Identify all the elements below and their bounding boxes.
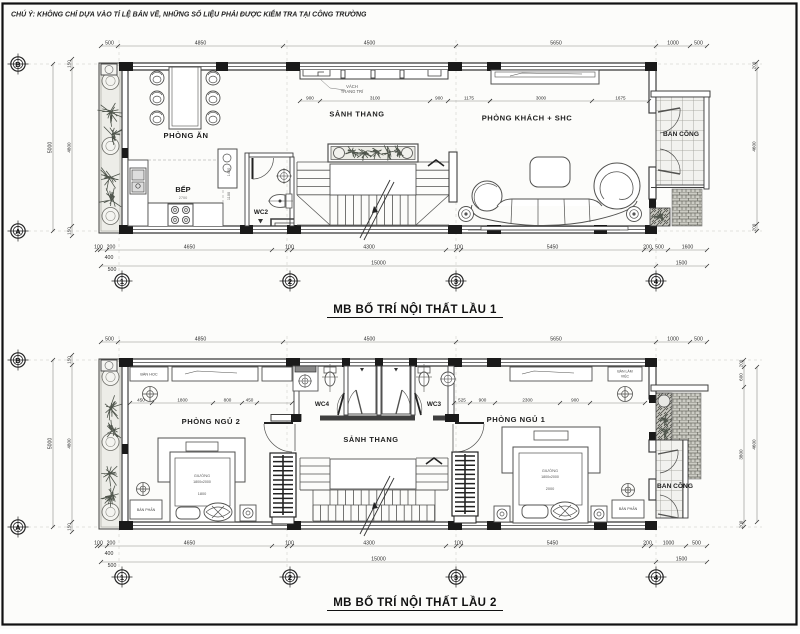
svg-text:4300: 4300 [363,540,375,546]
svg-text:450: 450 [246,397,254,402]
svg-text:150: 150 [67,227,72,235]
svg-text:1000: 1000 [663,540,675,546]
svg-text:SẢNH THANG: SẢNH THANG [343,435,398,444]
svg-text:2300: 2300 [522,397,533,402]
svg-text:1: 1 [120,277,124,286]
svg-text:PHÒNG ĂN: PHÒNG ĂN [164,131,209,140]
svg-text:15000: 15000 [371,556,386,562]
svg-text:5000: 5000 [48,142,54,154]
svg-text:4500: 4500 [364,40,376,46]
svg-text:1800x2000: 1800x2000 [541,475,559,479]
svg-text:3800: 3800 [739,449,744,460]
svg-text:GIƯỜNG: GIƯỜNG [542,468,558,473]
svg-text:800: 800 [224,397,232,402]
svg-text:B: B [15,60,21,69]
svg-text:PHÒNG KHÁCH + SHC: PHÒNG KHÁCH + SHC [482,114,573,123]
svg-text:200: 200 [107,244,116,250]
svg-text:500: 500 [655,244,664,250]
svg-text:1: 1 [120,573,124,582]
svg-text:4300: 4300 [363,244,375,250]
svg-text:200: 200 [643,244,652,250]
svg-text:4650: 4650 [184,244,196,250]
svg-text:5000: 5000 [48,438,54,450]
svg-text:500: 500 [108,563,117,569]
svg-text:5450: 5450 [547,244,559,250]
svg-text:500: 500 [108,267,117,273]
svg-text:VIỆC: VIỆC [621,374,630,379]
svg-text:100: 100 [454,540,463,546]
svg-text:450: 450 [137,397,145,402]
svg-text:500: 500 [694,336,703,342]
svg-text:500: 500 [105,336,114,342]
svg-text:4650: 4650 [184,540,196,546]
svg-text:400: 400 [105,551,114,557]
svg-text:100: 100 [94,540,103,546]
svg-text:900: 900 [571,397,579,402]
svg-text:200: 200 [643,540,652,546]
svg-text:1175: 1175 [464,95,474,100]
svg-text:5650: 5650 [550,336,562,342]
svg-text:3: 3 [454,277,458,286]
svg-text:200: 200 [739,359,744,367]
svg-text:900: 900 [435,95,443,100]
svg-text:B: B [15,356,21,365]
svg-text:4800: 4800 [67,438,72,449]
svg-text:4600: 4600 [752,141,757,152]
svg-text:900: 900 [479,397,487,402]
svg-text:200: 200 [107,540,116,546]
svg-text:4850: 4850 [195,336,207,342]
svg-text:600: 600 [739,373,744,381]
svg-text:4500: 4500 [364,336,376,342]
svg-text:200: 200 [739,520,744,528]
svg-text:SẢNH THANG: SẢNH THANG [329,110,384,119]
svg-text:BÀN HỌC: BÀN HỌC [140,373,158,377]
svg-text:1500: 1500 [676,260,688,266]
svg-text:BÀN LÀM: BÀN LÀM [617,370,632,374]
svg-text:TRANG TRÍ: TRANG TRÍ [341,89,364,94]
svg-text:3100: 3100 [370,95,381,100]
svg-text:A: A [15,227,21,236]
svg-text:900: 900 [306,95,314,100]
svg-text:BAN CÔNG: BAN CÔNG [657,481,693,490]
svg-text:A: A [15,523,21,532]
svg-text:100: 100 [454,244,463,250]
svg-text:MB BỐ TRÍ NỘI THẤT LẦU 1: MB BỐ TRÍ NỘI THẤT LẦU 1 [333,302,497,316]
svg-text:1400: 1400 [227,168,231,176]
svg-text:1800: 1800 [198,492,206,496]
svg-text:WC3: WC3 [427,401,442,408]
svg-text:BÀN PHẤN: BÀN PHẤN [619,507,638,511]
svg-text:BÀN PHẤN: BÀN PHẤN [137,508,156,512]
svg-text:1000: 1000 [667,336,679,342]
svg-text:500: 500 [694,40,703,46]
svg-text:525: 525 [458,397,466,402]
svg-text:1600: 1600 [682,244,694,250]
svg-text:1100: 1100 [227,192,231,200]
svg-text:PHÒNG NGỦ 2: PHÒNG NGỦ 2 [182,417,241,426]
svg-text:5450: 5450 [547,540,559,546]
svg-text:2: 2 [288,573,292,582]
svg-text:WC4: WC4 [315,401,330,408]
svg-text:PHÒNG NGỦ 1: PHÒNG NGỦ 1 [487,415,546,424]
svg-text:4600: 4600 [752,439,757,450]
svg-text:2700: 2700 [179,196,187,200]
svg-text:4850: 4850 [195,40,207,46]
svg-text:100: 100 [285,540,294,546]
svg-text:15000: 15000 [371,260,386,266]
svg-text:5650: 5650 [550,40,562,46]
svg-text:WC2: WC2 [254,209,269,216]
svg-text:150: 150 [67,523,72,531]
svg-text:GIƯỜNG: GIƯỜNG [194,473,210,478]
svg-text:1000: 1000 [667,40,679,46]
svg-text:BAN CÔNG: BAN CÔNG [663,129,699,138]
svg-text:CHÚ Ý: KHÔNG CHỈ DỰA VÀO TỈ LỆ: CHÚ Ý: KHÔNG CHỈ DỰA VÀO TỈ LỆ BẢN VẼ, N… [11,10,367,19]
svg-text:400: 400 [105,255,114,261]
svg-text:1800x2000: 1800x2000 [193,480,211,484]
svg-text:150: 150 [67,60,72,68]
svg-text:1500: 1500 [676,556,688,562]
svg-text:500: 500 [105,40,114,46]
svg-text:4800: 4800 [67,142,72,153]
svg-text:2000: 2000 [546,487,554,491]
svg-text:MB BỐ TRÍ NỘI THẤT LẦU 2: MB BỐ TRÍ NỘI THẤT LẦU 2 [333,595,497,609]
svg-text:100: 100 [94,244,103,250]
svg-text:2: 2 [288,277,292,286]
svg-text:1675: 1675 [615,95,626,100]
svg-text:500: 500 [692,540,701,546]
svg-text:100: 100 [285,244,294,250]
svg-text:200: 200 [752,61,757,69]
svg-text:BẾP: BẾP [175,184,190,194]
svg-text:3: 3 [454,573,458,582]
svg-text:3000: 3000 [536,95,547,100]
svg-text:1800: 1800 [177,397,188,402]
svg-text:150: 150 [67,356,72,364]
svg-text:200: 200 [752,223,757,231]
